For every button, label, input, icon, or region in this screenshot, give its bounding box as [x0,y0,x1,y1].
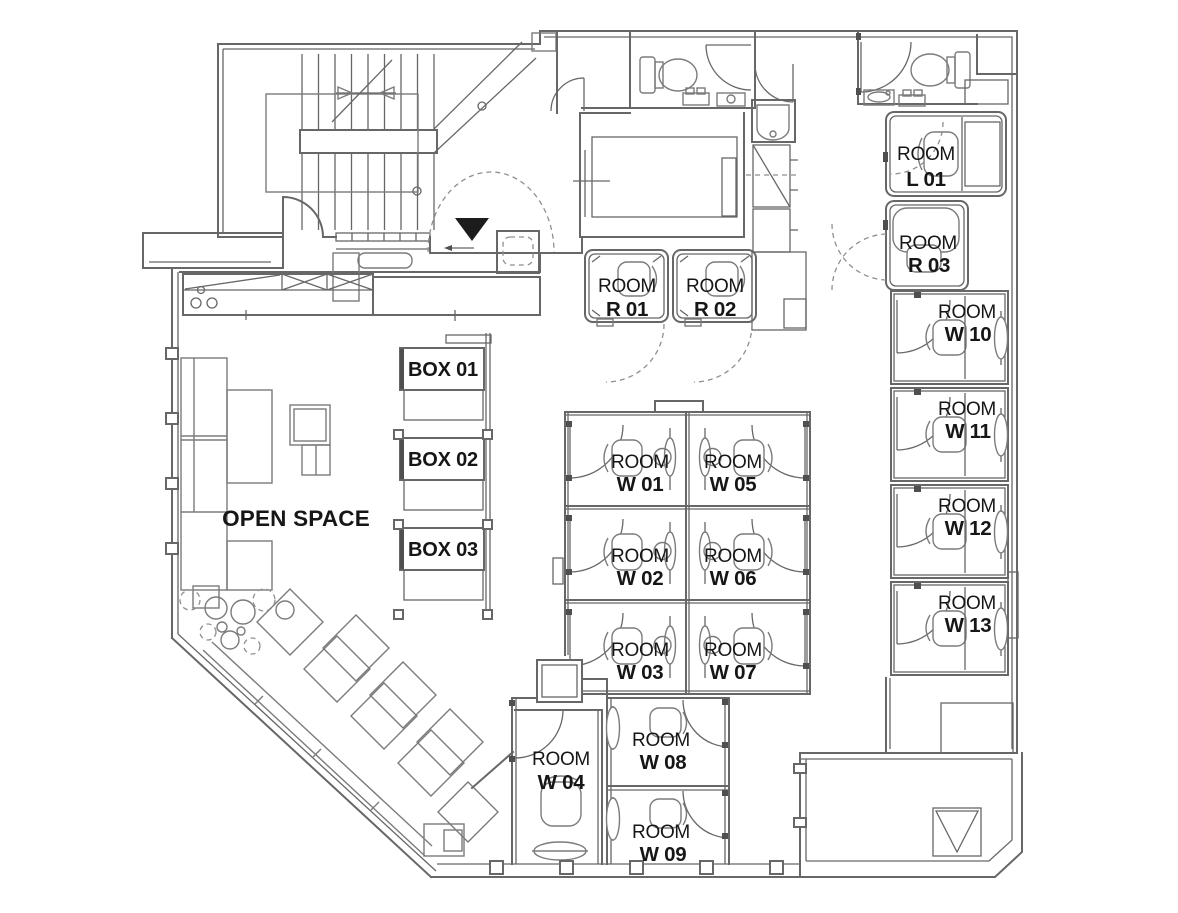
meeting-room [573,113,744,237]
hall-door [551,78,584,111]
diagonal-desks [257,589,498,856]
room-label-l01-title: ROOM [897,144,955,165]
room-label-w09-title: ROOM [632,822,690,843]
hatch-triangle-icon [936,811,978,852]
hatch [933,808,981,856]
floor-plan-drawing: ROOM R 01 ROOM R 02 ROOM L 01 ROOM R 03 … [0,0,1178,913]
bench-seating [181,358,227,590]
room-label-w06-number: W 06 [710,567,757,590]
entrance-bench [358,253,412,268]
box-02-label: BOX 02 [408,449,478,471]
pillar [537,660,582,702]
side-table [290,405,330,445]
room-label-w02-title: ROOM [611,546,669,567]
room-label-w12-number: W 12 [945,517,992,540]
faucet-icon [770,131,776,137]
room-label-w11-number: W 11 [945,420,991,443]
table [227,541,272,590]
vent [655,401,703,412]
room-label-w10-title: ROOM [938,302,996,323]
room-label-w03-title: ROOM [611,640,669,661]
room-label-w01-title: ROOM [611,452,669,473]
toilet-tank [955,52,970,88]
room-label-r03-title: ROOM [899,233,957,254]
room-label-r02-number: R 02 [694,298,736,321]
toilet-icon [911,54,949,86]
shaft [553,558,563,584]
room-label-w08-title: ROOM [632,730,690,751]
room-label-w01-number: W 01 [617,473,664,496]
sink-icon [191,298,201,308]
utility-room [941,703,1013,753]
kitchen-counter [183,274,540,321]
monitor-icon [607,798,620,840]
room-label-w09-number: W 09 [640,843,687,866]
table [227,390,272,483]
floor-plan-page: ROOM R 01 ROOM R 02 ROOM L 01 ROOM R 03 … [0,0,1178,913]
room-label-w04-title: ROOM [532,749,590,770]
open-space-label: OPEN SPACE [222,506,370,531]
box-03-label: BOX 03 [408,539,478,561]
toilet-b-door [861,42,911,92]
room-label-r03-number: R 03 [908,254,950,277]
room-label-w05-number: W 05 [710,473,757,496]
room-label-w05-title: ROOM [704,452,762,473]
central-room-grid [553,401,810,694]
room-label-w13-number: W 13 [945,614,992,637]
room-label-w07-number: W 07 [710,661,757,684]
room-label-r01-title: ROOM [598,276,656,297]
entrance-marker-icon [455,218,489,241]
entrance-arrow-icon [444,245,452,251]
room-label-w04-number: W 04 [538,771,586,794]
room-label-r01-number: R 01 [606,298,648,321]
niche-door [755,64,793,102]
toilet-room-b [856,33,1017,106]
room-label-w08-number: W 08 [640,751,687,774]
diagonal-bench [203,642,432,856]
room-label-w13-title: ROOM [938,593,996,614]
room-label-l01-number: L 01 [906,168,945,191]
room-label-w11-title: ROOM [938,399,996,420]
sink-niche [752,64,795,142]
staircase [266,42,536,237]
entrance-curtain-arc [428,172,554,252]
room-label-w03-number: W 03 [617,661,664,684]
room-label-w06-title: ROOM [704,546,762,567]
planters [180,586,294,654]
toilet-room-a [582,33,755,108]
room-label-w10-number: W 10 [945,323,992,346]
stair-door [283,197,323,237]
room-label-w12-title: ROOM [938,496,996,517]
toilet-tank [640,57,655,93]
room-label-w02-number: W 02 [617,567,664,590]
toilet-a-door [706,45,751,90]
monitor-icon [607,707,620,749]
balcony [800,678,1022,877]
room-label-w07-title: ROOM [704,640,762,661]
box-01-label: BOX 01 [408,359,478,381]
toilet-icon [659,59,697,91]
room-label-r02-title: ROOM [686,276,744,297]
corridor-door-swings [832,224,888,290]
